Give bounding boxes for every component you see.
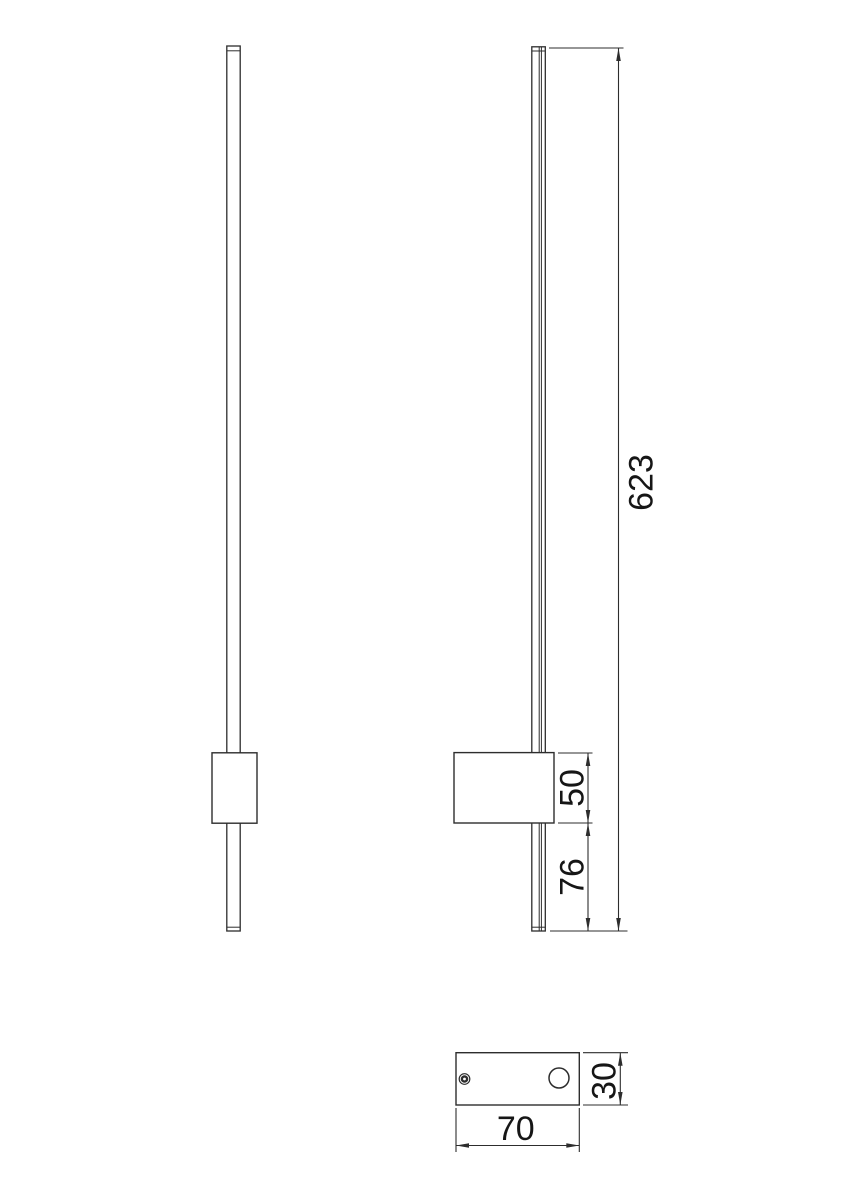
arrowhead-up xyxy=(586,823,591,836)
arrowhead-down xyxy=(616,918,621,931)
mounting-box-front xyxy=(212,753,257,823)
dimension-label-30: 30 xyxy=(586,1062,624,1100)
dimension-label-50: 50 xyxy=(554,769,592,807)
mounting-box-side xyxy=(454,753,554,823)
dimension-base-length: 70 xyxy=(456,1108,579,1152)
base-plate-outline xyxy=(456,1053,579,1105)
arrowhead-down xyxy=(586,810,591,823)
arrowhead-left xyxy=(456,1143,469,1148)
base-plate-top-view xyxy=(456,1053,579,1105)
arrowhead-down xyxy=(586,918,591,931)
arrowhead-up xyxy=(616,48,621,61)
drawing-page: 623 50 76 xyxy=(0,0,847,1200)
arrowhead-right xyxy=(566,1143,579,1148)
dimension-bottom-offset: 76 xyxy=(554,823,592,931)
dimension-label-76: 76 xyxy=(554,858,592,896)
front-view xyxy=(212,46,257,931)
arrowhead-up xyxy=(586,753,591,766)
dimension-label-623: 623 xyxy=(623,454,661,511)
dimension-base-depth: 30 xyxy=(583,1053,628,1105)
dimension-label-70: 70 xyxy=(497,1110,535,1148)
side-view xyxy=(454,47,554,931)
technical-drawing-canvas: 623 50 76 xyxy=(0,0,847,1200)
dimension-bracket-height: 50 xyxy=(554,753,593,823)
